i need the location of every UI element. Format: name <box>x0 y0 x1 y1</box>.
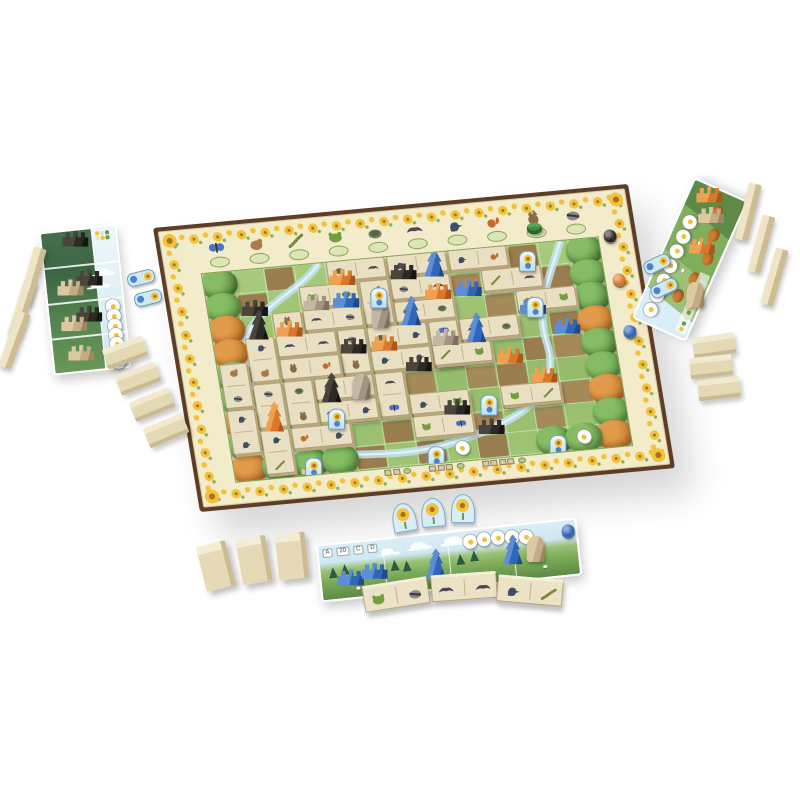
tile-icon <box>490 460 498 467</box>
facedown-domino-block[interactable] <box>697 375 741 401</box>
cloud-art <box>410 541 427 551</box>
petal-icon <box>334 421 340 427</box>
frog-icon <box>472 346 486 357</box>
bonus-card[interactable] <box>519 250 536 271</box>
lizard-icon <box>488 274 502 285</box>
gray-menhir-piece[interactable] <box>353 374 371 400</box>
woodpecker-icon <box>378 355 392 366</box>
black-comb-piece[interactable] <box>444 398 470 414</box>
lizard-icon <box>541 386 555 397</box>
flower-token[interactable] <box>476 532 491 547</box>
tile-icon <box>437 465 445 472</box>
sunflower-token[interactable] <box>420 497 446 528</box>
track-space[interactable] <box>328 245 350 258</box>
frog-icon <box>556 291 570 302</box>
flower-token[interactable] <box>463 534 478 549</box>
area-icon <box>517 457 526 464</box>
legend-badge-c: C <box>353 545 364 555</box>
stem-icon <box>432 517 435 524</box>
orange-comb-piece[interactable] <box>689 238 715 254</box>
sunflower-icon <box>456 499 469 512</box>
tan-menhir-piece[interactable] <box>527 536 545 562</box>
gray-comb-piece[interactable] <box>432 329 458 345</box>
flower-token[interactable] <box>490 530 505 545</box>
blue-comb-piece[interactable] <box>554 318 580 334</box>
petal-icon <box>532 309 538 315</box>
woodpecker-icon <box>332 429 346 440</box>
legend-badge-d: D <box>367 543 378 553</box>
track-space[interactable] <box>407 237 429 250</box>
black-comb-piece[interactable] <box>77 269 103 285</box>
track-space[interactable] <box>249 252 271 265</box>
squirrel-icon <box>488 251 502 262</box>
gray-comb-piece[interactable] <box>303 294 329 310</box>
facedown-domino-block[interactable] <box>235 535 273 586</box>
black-comb-piece[interactable] <box>62 231 88 247</box>
sunflower-icon <box>425 503 439 517</box>
stem-icon <box>404 522 407 529</box>
orange-comb-piece[interactable] <box>276 320 302 336</box>
lizard-icon <box>539 585 558 601</box>
track-space[interactable] <box>209 256 231 269</box>
open-domino[interactable] <box>430 571 498 603</box>
woodpecker-icon <box>416 398 430 409</box>
tan-menhir-piece[interactable] <box>686 282 704 308</box>
petal-icon <box>433 458 439 464</box>
sunflower-icon <box>395 507 410 522</box>
woodpecker-icon <box>443 217 465 234</box>
owl-icon <box>349 358 363 369</box>
blue-comb-piece[interactable] <box>362 563 388 579</box>
blue-comb-piece[interactable] <box>338 569 364 585</box>
track-space[interactable] <box>367 241 389 254</box>
flower-token[interactable] <box>641 301 659 319</box>
facedown-domino-block[interactable] <box>689 353 733 378</box>
main-board <box>153 184 675 512</box>
squirrel-icon <box>298 432 312 443</box>
petal-icon <box>645 262 654 271</box>
facedown-domino-block[interactable] <box>129 386 176 421</box>
sunflower-icon <box>523 254 531 262</box>
bat-icon <box>436 581 455 596</box>
petal-icon <box>555 447 561 453</box>
bat-icon <box>316 337 330 348</box>
tan-comb-piece[interactable] <box>68 345 94 361</box>
butterfly-icon <box>205 239 227 256</box>
track-space[interactable] <box>565 223 587 236</box>
woodpecker-icon <box>235 414 249 425</box>
sunflower-icon <box>658 255 669 266</box>
sunflower-icon <box>485 398 493 406</box>
bat-icon <box>309 314 323 325</box>
bonus-card[interactable] <box>481 394 498 415</box>
orange-comb-piece[interactable] <box>497 347 523 363</box>
tile-icon <box>498 459 506 466</box>
petal-icon <box>652 286 661 295</box>
raccoon-icon <box>397 283 411 294</box>
sunflower-icon <box>375 291 383 299</box>
petal-icon <box>524 262 530 268</box>
frog-icon <box>324 228 346 245</box>
woodpecker-icon <box>239 439 253 450</box>
tile-icon <box>384 469 392 476</box>
sunflower-icon <box>333 412 341 420</box>
board-legend-icons <box>95 230 114 241</box>
turtle-icon <box>434 303 448 314</box>
orange-comb-piece[interactable] <box>425 283 451 299</box>
orange-comb-piece[interactable] <box>330 269 356 285</box>
sunflower-token[interactable] <box>390 501 419 534</box>
turtle-icon <box>292 385 306 396</box>
frog-icon <box>368 590 388 607</box>
area-icon <box>403 468 412 475</box>
petal-icon <box>376 300 382 306</box>
orange-comb-piece[interactable] <box>696 186 722 202</box>
facedown-domino-block[interactable] <box>143 412 190 448</box>
sunflower-token[interactable] <box>451 494 475 523</box>
hamster-icon <box>227 367 241 378</box>
petal-icon <box>486 406 492 412</box>
sunflower-icon <box>150 291 160 301</box>
tile-icon <box>507 458 515 465</box>
board-game-scene: A 20 C D <box>0 0 800 800</box>
bat-icon <box>282 340 296 351</box>
woodpecker-icon <box>254 342 268 353</box>
hamster-icon <box>258 367 272 378</box>
orange-comb-piece[interactable] <box>372 335 398 351</box>
raccoon-icon <box>562 206 584 223</box>
lizard-icon <box>285 232 307 249</box>
legend-badge-20: 20 <box>336 546 350 556</box>
sunflower-icon <box>665 279 676 290</box>
bat-icon <box>403 221 425 238</box>
facedown-domino-block[interactable] <box>0 311 30 370</box>
sunflower-icon <box>531 300 539 308</box>
black-comb-piece[interactable] <box>478 419 504 435</box>
turtle-icon <box>364 225 386 242</box>
raccoon-icon <box>231 393 245 404</box>
bat-icon <box>366 262 380 273</box>
woodpecker-icon <box>502 582 521 598</box>
owl-icon <box>286 363 300 374</box>
tan-comb-piece[interactable] <box>57 279 83 295</box>
legend-badge-a: A <box>322 548 333 558</box>
facedown-domino-block[interactable] <box>196 540 236 592</box>
tile-icon <box>429 465 437 472</box>
woodpecker-icon <box>454 254 468 265</box>
track-space[interactable] <box>447 234 469 247</box>
raccoon-icon <box>343 311 357 322</box>
orange-comb-piece[interactable] <box>531 367 557 383</box>
tile-icon <box>481 460 489 467</box>
butterfly-icon <box>453 418 467 429</box>
facedown-domino-block[interactable] <box>275 532 310 581</box>
bonus-card[interactable] <box>370 288 387 309</box>
blue-comb-piece[interactable] <box>333 292 359 308</box>
frog-icon <box>507 389 521 400</box>
woodpecker-icon <box>358 403 372 414</box>
bat-icon <box>522 271 536 282</box>
tile-icon <box>392 469 400 476</box>
butterfly-icon <box>387 402 401 413</box>
track-space[interactable] <box>486 230 508 243</box>
black-comb-piece[interactable] <box>341 338 367 354</box>
black-comb-piece[interactable] <box>391 263 417 279</box>
blue-comb-piece[interactable] <box>455 280 481 296</box>
bat-icon <box>473 579 492 594</box>
frog-icon <box>419 421 433 432</box>
sunflower-icon <box>432 450 440 458</box>
petal-icon <box>311 470 317 476</box>
bonus-card-token[interactable] <box>126 268 157 288</box>
tile-icon <box>445 464 453 471</box>
track-space[interactable] <box>288 248 310 261</box>
raccoon-icon <box>261 388 275 399</box>
board-legend-badges: A 20 C D <box>322 543 378 558</box>
black-comb-piece[interactable] <box>406 355 432 371</box>
petal-icon <box>136 295 144 303</box>
petal-icon <box>129 275 137 283</box>
bonus-card[interactable] <box>328 409 345 430</box>
woodpecker-icon <box>408 328 422 339</box>
sunflower-icon <box>554 438 562 446</box>
squirrel-icon <box>482 214 504 231</box>
black-comb-piece[interactable] <box>242 300 268 316</box>
open-domino[interactable] <box>496 574 564 607</box>
area-icon <box>456 463 465 470</box>
lizard-icon <box>438 349 452 360</box>
stem-icon <box>462 513 464 520</box>
raccoon-icon <box>404 584 424 601</box>
bonus-card-token[interactable] <box>133 288 164 308</box>
sunflower-icon <box>143 271 153 281</box>
bat-icon <box>383 376 397 387</box>
valley-play-area <box>201 236 634 482</box>
sunflower-icon <box>310 461 318 469</box>
hamster-icon <box>245 236 267 253</box>
tan-comb-piece[interactable] <box>61 315 87 331</box>
owl-icon <box>296 410 310 421</box>
squirrel-icon <box>320 360 334 371</box>
turtle-icon <box>499 320 513 331</box>
blue-disc[interactable] <box>561 524 575 538</box>
woodpecker-icon <box>269 434 283 445</box>
tan-comb-piece[interactable] <box>698 207 724 223</box>
bonus-card[interactable] <box>526 297 543 318</box>
lizard-icon <box>273 459 287 470</box>
